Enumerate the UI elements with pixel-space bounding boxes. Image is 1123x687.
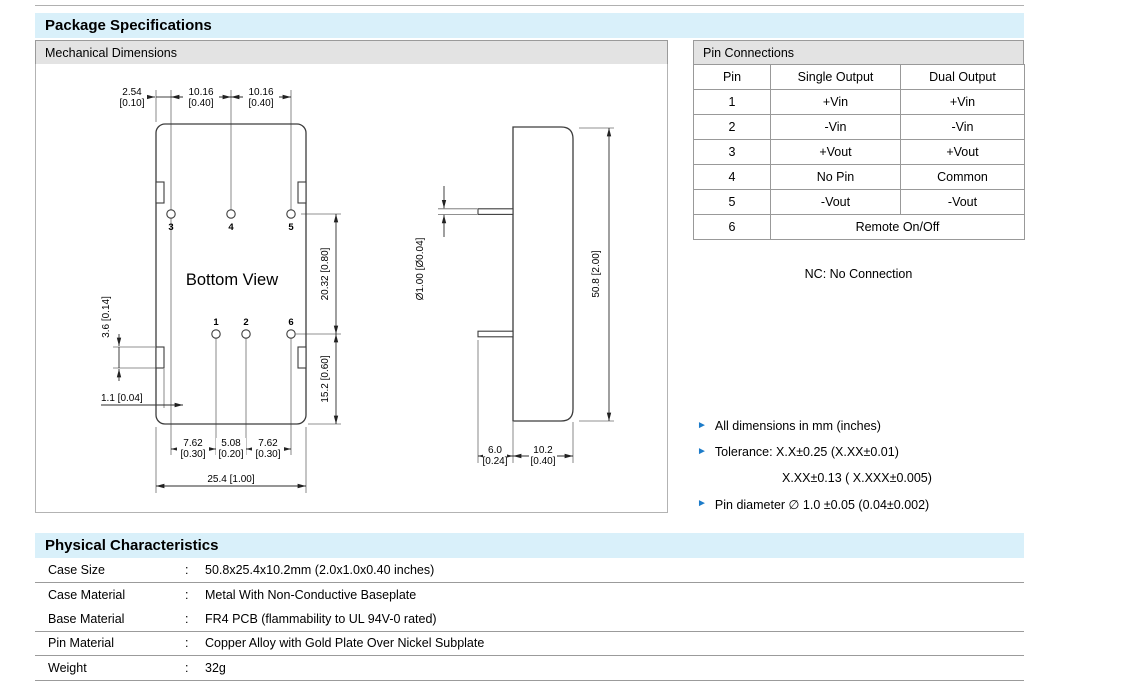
page-title-text: Package Specifications <box>45 17 212 34</box>
column-header-dual: Dual Output <box>901 65 1025 90</box>
pin-connections-label: Pin Connections <box>703 46 794 60</box>
characteristic-separator: : <box>185 588 205 602</box>
table-cell: -Vout <box>771 190 901 215</box>
table-row: 2 -Vin -Vin <box>694 115 1025 140</box>
table-cell: +Vout <box>771 140 901 165</box>
characteristic-value: Metal With Non-Conductive Baseplate <box>205 588 1024 602</box>
side-tab <box>156 182 164 203</box>
nc-note: NC: No Connection <box>693 267 1024 281</box>
bullet-triangle-icon: ► <box>697 499 707 509</box>
dim-bot3-mm: 7.62 <box>258 438 278 449</box>
pin-number-2: 2 <box>243 317 248 328</box>
dim-row-gap: 20.32 [0.80] <box>320 247 331 300</box>
dim-tab-height: 3.6 [0.14] <box>101 296 112 338</box>
top-divider <box>35 5 1024 6</box>
table-cell: 4 <box>694 165 771 190</box>
characteristic-row: Weight : 32g <box>35 656 1024 681</box>
bullet-triangle-icon: ► <box>697 421 707 431</box>
characteristic-label: Base Material <box>35 612 185 626</box>
characteristic-label: Weight <box>35 661 185 675</box>
dim-bot1-mm: 7.62 <box>183 438 203 449</box>
table-row: 6 Remote On/Off <box>694 215 1025 240</box>
table-cell: +Vin <box>901 90 1025 115</box>
dim-bot2-mm: 5.08 <box>221 438 241 449</box>
dim-case-depth-in: [0.40] <box>530 456 555 467</box>
pin-number-4: 4 <box>228 222 234 233</box>
note-item: ► Pin diameter ∅ 1.0 ±0.05 (0.04±0.002) <box>697 491 932 517</box>
note-text: X.XX±0.13 ( X.XXX±0.005) <box>782 471 932 485</box>
characteristic-value: FR4 PCB (flammability to UL 94V-0 rated) <box>205 612 1024 626</box>
pin-connections-table: Pin Single Output Dual Output 1 +Vin +Vi… <box>693 64 1025 240</box>
mechanical-drawing: 2.54 [0.10] 10.16 [0.40] 10.16 [0.40] 7.… <box>36 64 669 513</box>
characteristic-value: 32g <box>205 661 1024 675</box>
characteristic-value: 50.8x25.4x10.2mm (2.0x1.0x0.40 inches) <box>205 563 1024 577</box>
table-cell: 1 <box>694 90 771 115</box>
table-cell: 3 <box>694 140 771 165</box>
dim-top-pitch1-in: [0.40] <box>188 98 213 109</box>
side-view-pin <box>478 209 513 215</box>
dim-case-depth-mm: 10.2 <box>533 445 553 456</box>
bullet-triangle-icon: ► <box>697 447 707 457</box>
bottom-view-label: Bottom View <box>186 271 278 289</box>
note-text: Pin diameter ∅ 1.0 ±0.05 (0.04±0.002) <box>715 497 929 512</box>
dim-top-pitch1-mm: 10.16 <box>188 87 213 98</box>
side-view-pin <box>478 331 513 337</box>
characteristic-row: Base Material : FR4 PCB (flammability to… <box>35 607 1024 632</box>
table-cell: 2 <box>694 115 771 140</box>
physical-characteristics-title-text: Physical Characteristics <box>45 537 218 554</box>
side-tab <box>298 347 306 368</box>
note-text: All dimensions in mm (inches) <box>715 419 881 433</box>
table-cell: 5 <box>694 190 771 215</box>
table-cell: +Vin <box>771 90 901 115</box>
extension-lines <box>113 90 614 493</box>
mechanical-dimensions-label: Mechanical Dimensions <box>45 46 177 60</box>
pin-connections-header: Pin Connections <box>693 40 1024 65</box>
dim-edge-offset: 1.1 [0.04] <box>101 393 143 404</box>
note-item: ► All dimensions in mm (inches) <box>697 413 932 439</box>
dim-bot3-in: [0.30] <box>255 449 280 460</box>
pin-number-3: 3 <box>168 222 173 233</box>
dim-total-width: 25.4 [1.00] <box>207 474 254 485</box>
dim-top-offset-in: [0.10] <box>119 98 144 109</box>
side-tab <box>298 182 306 203</box>
dim-top-pitch2-mm: 10.16 <box>248 87 273 98</box>
note-item: ► Tolerance: X.X±0.25 (X.XX±0.01) <box>697 439 932 465</box>
characteristic-row: Case Material : Metal With Non-Conductiv… <box>35 583 1024 608</box>
note-item-continuation: X.XX±0.13 ( X.XXX±0.005) <box>697 465 932 491</box>
notes-list: ► All dimensions in mm (inches) ► Tolera… <box>697 413 932 517</box>
note-text: Tolerance: X.X±0.25 (X.XX±0.01) <box>715 445 899 459</box>
mechanical-dimensions-header: Mechanical Dimensions <box>35 40 668 65</box>
side-tab <box>156 347 164 368</box>
characteristic-label: Case Size <box>35 563 185 577</box>
table-row: 1 +Vin +Vin <box>694 90 1025 115</box>
side-view-outline <box>478 127 573 421</box>
label-backgrounds <box>118 87 557 465</box>
column-header-single: Single Output <box>771 65 901 90</box>
characteristic-value: Copper Alloy with Gold Plate Over Nickel… <box>205 636 1024 650</box>
table-cell: +Vout <box>901 140 1025 165</box>
dimension-labels: 2.54 [0.10] 10.16 [0.40] 10.16 [0.40] 7.… <box>101 87 602 485</box>
dim-bot2-in: [0.20] <box>218 449 243 460</box>
characteristic-separator: : <box>185 612 205 626</box>
table-cell: Common <box>901 165 1025 190</box>
column-header-pin: Pin <box>694 65 771 90</box>
dim-top-pitch2-in: [0.40] <box>248 98 273 109</box>
characteristic-label: Pin Material <box>35 636 185 650</box>
dim-pin-length-in: [0.24] <box>482 456 507 467</box>
table-cell: No Pin <box>771 165 901 190</box>
table-cell: -Vout <box>901 190 1025 215</box>
characteristic-separator: : <box>185 563 205 577</box>
table-cell: -Vin <box>771 115 901 140</box>
pin-number-6: 6 <box>288 317 293 328</box>
table-row: 4 No Pin Common <box>694 165 1025 190</box>
dimension-lines <box>101 97 609 486</box>
characteristic-separator: : <box>185 636 205 650</box>
dim-pin-diameter: Ø1.00 [Ø0.04] <box>415 237 426 300</box>
table-row: 5 -Vout -Vout <box>694 190 1025 215</box>
characteristic-separator: : <box>185 661 205 675</box>
dim-pin-length-mm: 6.0 <box>488 445 502 456</box>
page-title: Package Specifications <box>35 13 1024 38</box>
physical-characteristics-table: Case Size : 50.8x25.4x10.2mm (2.0x1.0x0.… <box>35 558 1024 681</box>
table-cell: 6 <box>694 215 771 240</box>
dim-top-offset-mm: 2.54 <box>122 87 142 98</box>
dim-bottom-gap: 15.2 [0.60] <box>320 355 331 402</box>
pin-number-1: 1 <box>213 317 219 328</box>
table-cell: -Vin <box>901 115 1025 140</box>
dim-total-height: 50.8 [2.00] <box>591 250 602 297</box>
characteristic-label: Case Material <box>35 588 185 602</box>
table-cell-span: Remote On/Off <box>771 215 1025 240</box>
table-header-row: Pin Single Output Dual Output <box>694 65 1025 90</box>
dim-bot1-in: [0.30] <box>180 449 205 460</box>
pin-number-5: 5 <box>288 222 294 233</box>
physical-characteristics-title: Physical Characteristics <box>35 533 1024 558</box>
characteristic-row: Pin Material : Copper Alloy with Gold Pl… <box>35 632 1024 657</box>
table-row: 3 +Vout +Vout <box>694 140 1025 165</box>
characteristic-row: Case Size : 50.8x25.4x10.2mm (2.0x1.0x0.… <box>35 558 1024 583</box>
mechanical-drawing-panel: 2.54 [0.10] 10.16 [0.40] 10.16 [0.40] 7.… <box>35 64 668 513</box>
